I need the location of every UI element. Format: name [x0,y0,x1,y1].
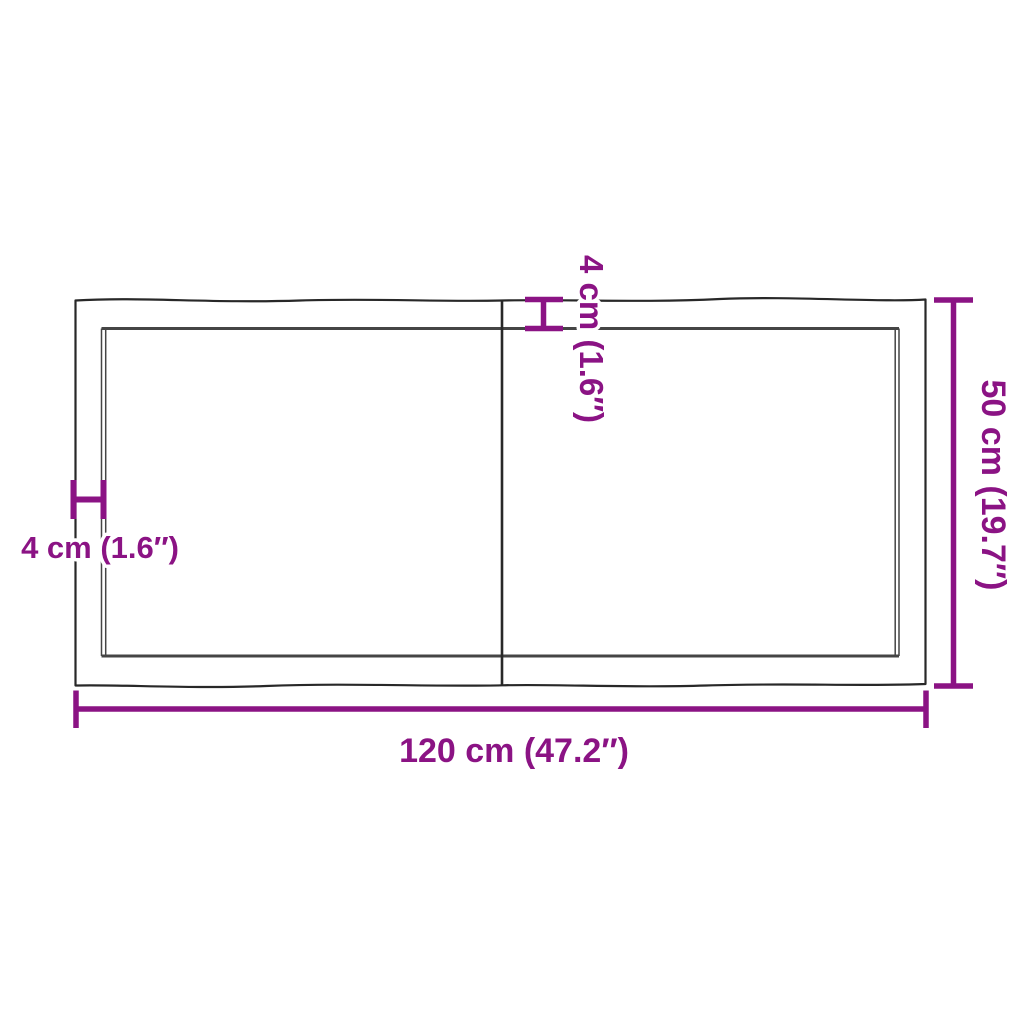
inner-edge-right-double-line [895,329,899,657]
tabletop-outline [76,298,926,687]
height-dimension-label: 50 cm (19.7″) [974,380,1012,591]
dimension-diagram-svg: 120 cm (47.2″) 50 cm (19.7″) 4 cm (1.6″)… [0,0,1024,1024]
thickness-top-marker [525,300,563,329]
width-dimension-label: 120 cm (47.2″) [399,732,629,770]
thickness-left-dimension-label: 4 cm (1.6″) [21,530,179,565]
height-dimension-line [934,300,973,686]
thickness-left-marker [74,480,104,519]
thickness-top-dimension-label: 4 cm (1.6″) [573,255,610,423]
dimension-diagram-canvas: 120 cm (47.2″) 50 cm (19.7″) 4 cm (1.6″)… [0,0,1024,1024]
width-dimension-line [76,691,926,729]
